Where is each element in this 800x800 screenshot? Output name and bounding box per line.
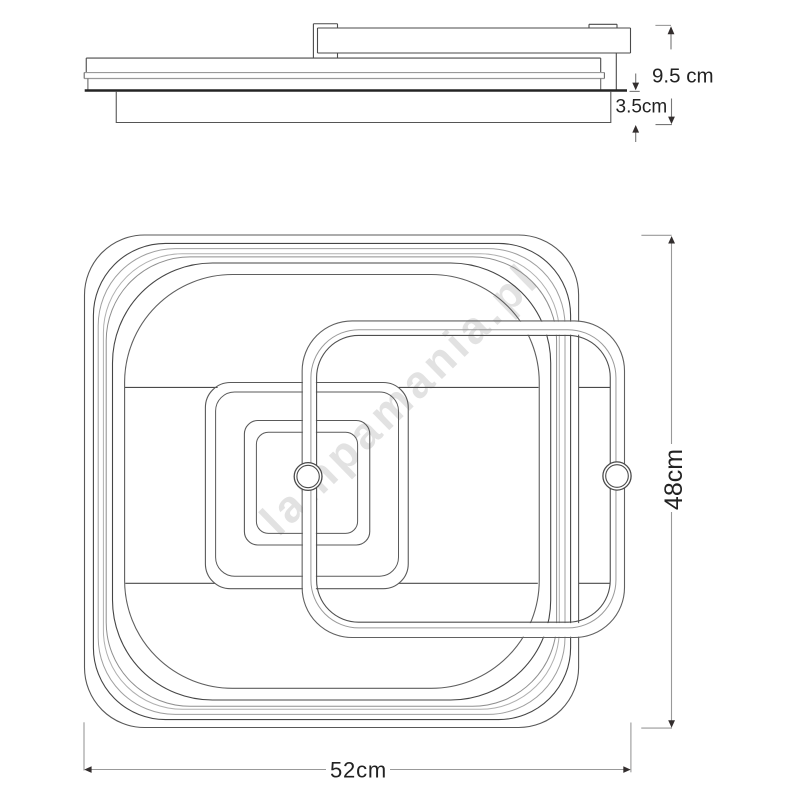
svg-text:3.5cm: 3.5cm	[616, 97, 668, 118]
svg-text:48cm: 48cm	[660, 449, 688, 510]
svg-text:9.5 cm: 9.5 cm	[652, 65, 714, 88]
svg-text:52cm: 52cm	[330, 758, 387, 783]
